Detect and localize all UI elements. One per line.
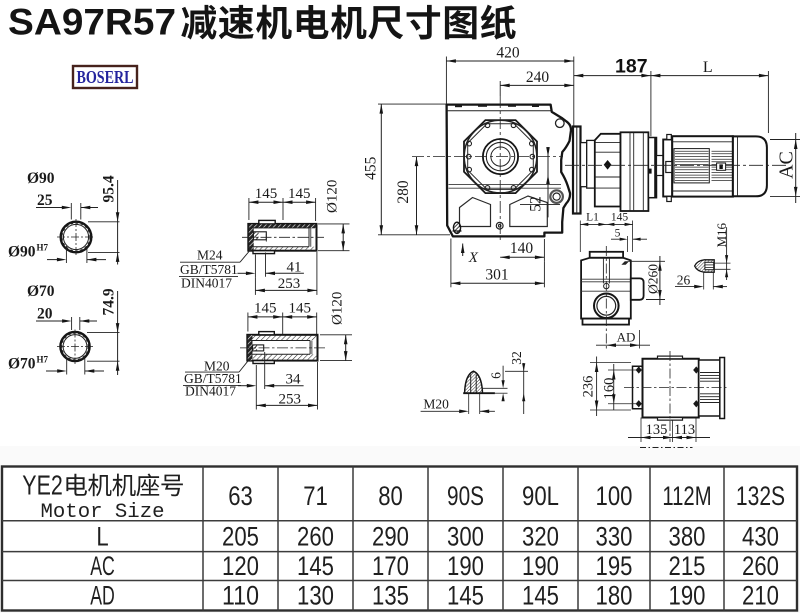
svg-text:90L: 90L bbox=[522, 481, 559, 511]
svg-text:145: 145 bbox=[522, 581, 559, 611]
svg-text:Ø90: Ø90 bbox=[8, 244, 36, 261]
svg-text:180: 180 bbox=[596, 581, 633, 611]
svg-text:253: 253 bbox=[278, 276, 301, 292]
svg-text:205: 205 bbox=[222, 521, 259, 551]
svg-text:132S: 132S bbox=[736, 481, 785, 511]
svg-text:H7: H7 bbox=[37, 355, 49, 365]
svg-text:240: 240 bbox=[526, 69, 550, 86]
svg-text:BOSERL: BOSERL bbox=[77, 67, 134, 87]
svg-text:63: 63 bbox=[228, 481, 253, 511]
svg-text:M20: M20 bbox=[423, 397, 449, 412]
svg-text:AC: AC bbox=[776, 151, 798, 179]
svg-text:74.9: 74.9 bbox=[101, 288, 118, 315]
svg-text:290: 290 bbox=[372, 521, 409, 551]
svg-text:300: 300 bbox=[447, 521, 484, 551]
svg-text:430: 430 bbox=[742, 521, 779, 551]
svg-text:236: 236 bbox=[581, 376, 597, 398]
svg-text:H7: H7 bbox=[37, 243, 49, 253]
svg-text:100: 100 bbox=[596, 481, 633, 511]
svg-text:195: 195 bbox=[596, 551, 633, 581]
svg-text:145: 145 bbox=[447, 581, 484, 611]
svg-text:110: 110 bbox=[222, 581, 259, 611]
svg-text:DIN4017: DIN4017 bbox=[181, 276, 232, 291]
svg-text:320: 320 bbox=[522, 521, 559, 551]
svg-text:L1: L1 bbox=[586, 212, 599, 224]
svg-text:AD: AD bbox=[617, 330, 636, 345]
svg-text:Ø260: Ø260 bbox=[646, 264, 661, 294]
svg-text:32: 32 bbox=[509, 351, 524, 365]
svg-text:280: 280 bbox=[395, 180, 412, 204]
svg-text:20: 20 bbox=[37, 306, 53, 323]
svg-text:Ø120: Ø120 bbox=[325, 180, 341, 213]
svg-text:M24: M24 bbox=[197, 248, 223, 263]
svg-text:145: 145 bbox=[254, 301, 277, 317]
svg-text:135: 135 bbox=[372, 581, 409, 611]
svg-text:AD: AD bbox=[90, 581, 115, 611]
svg-text:145: 145 bbox=[255, 186, 278, 202]
svg-text:52: 52 bbox=[528, 196, 545, 212]
svg-text:26: 26 bbox=[677, 273, 691, 288]
svg-text:L: L bbox=[96, 521, 108, 551]
svg-text:71: 71 bbox=[303, 481, 328, 511]
svg-text:260: 260 bbox=[742, 551, 779, 581]
svg-text:455: 455 bbox=[363, 156, 380, 180]
svg-text:Ø120: Ø120 bbox=[330, 292, 346, 325]
svg-text:34: 34 bbox=[286, 372, 302, 388]
svg-text:380: 380 bbox=[669, 521, 706, 551]
svg-text:330: 330 bbox=[596, 521, 633, 551]
svg-text:190: 190 bbox=[669, 581, 706, 611]
svg-text:112M: 112M bbox=[662, 481, 711, 511]
svg-text:170: 170 bbox=[372, 551, 409, 581]
svg-text:113: 113 bbox=[674, 422, 695, 438]
svg-text:80: 80 bbox=[378, 481, 403, 511]
svg-text:Ø70: Ø70 bbox=[8, 356, 36, 373]
svg-text:L: L bbox=[703, 59, 713, 76]
svg-text:6: 6 bbox=[489, 372, 504, 379]
svg-text:145: 145 bbox=[297, 551, 334, 581]
svg-text:215: 215 bbox=[669, 551, 706, 581]
svg-text:140: 140 bbox=[510, 240, 534, 257]
svg-text:145: 145 bbox=[611, 212, 629, 224]
svg-text:210: 210 bbox=[742, 581, 779, 611]
svg-text:X: X bbox=[468, 250, 479, 266]
svg-text:Ø70: Ø70 bbox=[27, 283, 55, 300]
svg-text:AC: AC bbox=[90, 551, 115, 581]
svg-text:DIN4017: DIN4017 bbox=[185, 384, 236, 399]
svg-text:120: 120 bbox=[222, 551, 259, 581]
svg-text:135: 135 bbox=[646, 422, 668, 438]
svg-text:95.4: 95.4 bbox=[101, 175, 118, 202]
svg-text:190: 190 bbox=[522, 551, 559, 581]
svg-text:145: 145 bbox=[288, 186, 311, 202]
svg-text:301: 301 bbox=[485, 267, 508, 284]
svg-text:YE2: YE2 bbox=[22, 469, 63, 500]
svg-text:145: 145 bbox=[288, 301, 311, 317]
svg-text:260: 260 bbox=[297, 521, 334, 551]
svg-text:190: 190 bbox=[447, 551, 484, 581]
svg-text:Ø90: Ø90 bbox=[27, 170, 55, 187]
svg-text:130: 130 bbox=[297, 581, 334, 611]
svg-text:25: 25 bbox=[37, 192, 53, 209]
svg-text:SA97R57: SA97R57 bbox=[8, 2, 176, 43]
svg-text:90S: 90S bbox=[447, 481, 484, 511]
svg-text:420: 420 bbox=[496, 45, 520, 62]
